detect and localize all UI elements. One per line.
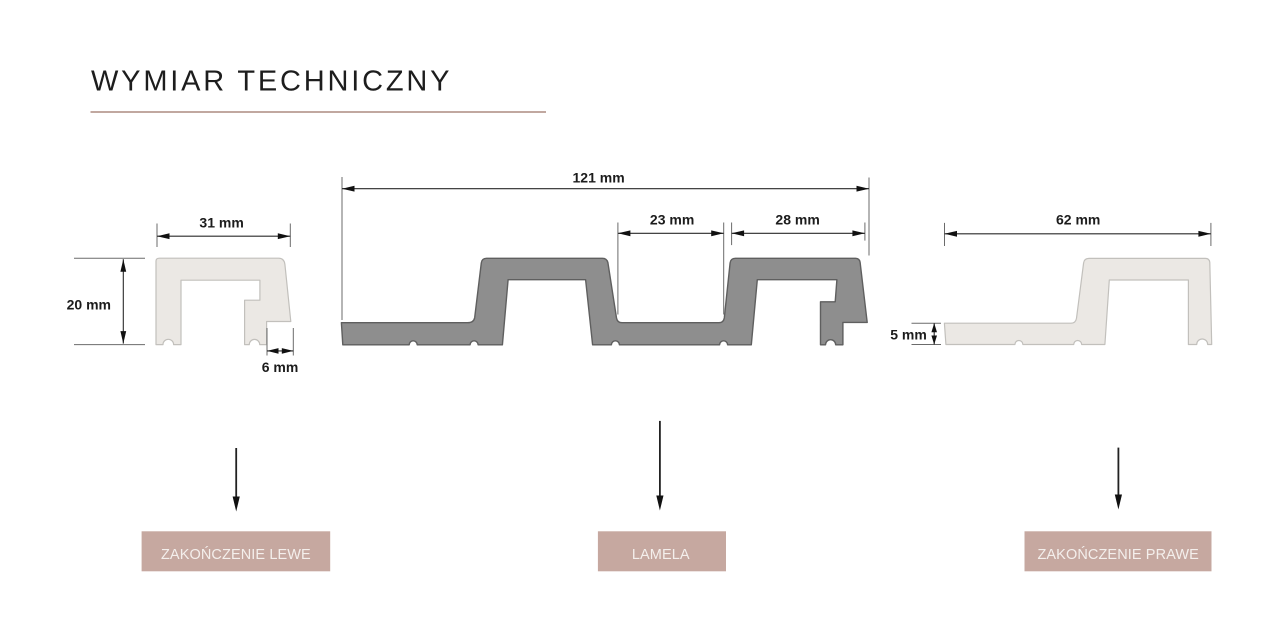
svg-text:23 mm: 23 mm <box>650 211 694 227</box>
svg-text:62 mm: 62 mm <box>1056 212 1100 228</box>
svg-text:31 mm: 31 mm <box>199 215 243 231</box>
svg-text:ZAKOŃCZENIE PRAWE: ZAKOŃCZENIE PRAWE <box>1037 546 1199 563</box>
svg-text:20 mm: 20 mm <box>67 296 111 312</box>
svg-text:LAMELA: LAMELA <box>632 547 690 563</box>
svg-text:6 mm: 6 mm <box>262 359 299 375</box>
svg-text:121 mm: 121 mm <box>573 170 625 186</box>
svg-text:WYMIAR TECHNICZNY: WYMIAR TECHNICZNY <box>91 66 452 98</box>
svg-text:ZAKOŃCZENIE LEWE: ZAKOŃCZENIE LEWE <box>161 546 311 563</box>
svg-text:28 mm: 28 mm <box>775 211 819 227</box>
svg-text:5 mm: 5 mm <box>890 326 927 342</box>
